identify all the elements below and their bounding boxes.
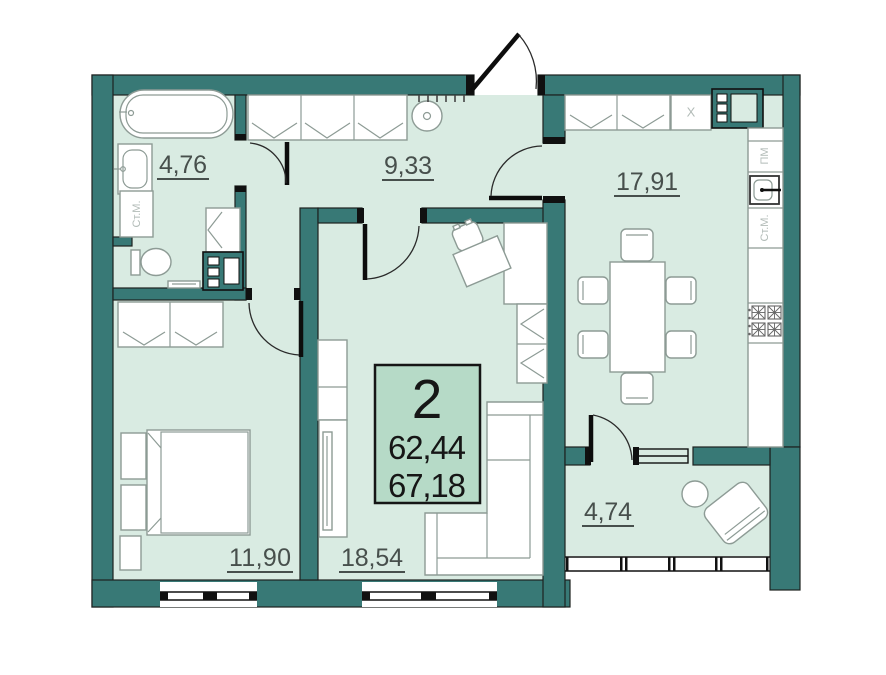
living-room-cabinet-icon bbox=[504, 223, 547, 304]
bedroom-wardrobe-icon bbox=[118, 302, 223, 347]
bathroom-cabinet-icon bbox=[206, 208, 240, 252]
balcony-table-icon bbox=[682, 481, 708, 507]
living-room-wardrobe-icon bbox=[517, 304, 547, 383]
kitchen-area-label: 17,91 bbox=[616, 168, 678, 196]
apartment-number: 2 bbox=[412, 368, 443, 430]
bed-icon bbox=[147, 430, 250, 535]
apartment-info-box: 2 62,44 67,18 bbox=[375, 365, 480, 504]
washing-machine-bath-label: Ст.М. bbox=[131, 200, 143, 227]
apartment-area-1: 62,44 bbox=[388, 429, 466, 466]
oven-icon bbox=[712, 89, 763, 128]
bathroom-shelf-unit-icon bbox=[203, 252, 243, 290]
bath-mat-icon bbox=[168, 281, 200, 288]
living-room-window bbox=[362, 582, 497, 607]
living-room-area-label: 18,54 bbox=[341, 544, 403, 572]
fridge-icon: X bbox=[671, 95, 711, 130]
balcony-area-label: 4,74 bbox=[584, 498, 632, 526]
hallway-mirror-icon bbox=[412, 101, 442, 131]
washbasin-icon bbox=[114, 144, 152, 194]
dining-table-icon bbox=[610, 262, 665, 372]
apartment-area-2: 67,18 bbox=[388, 467, 466, 504]
bedroom-area-label: 11,90 bbox=[229, 544, 291, 572]
fridge-label: X bbox=[687, 104, 696, 119]
bathtub-icon bbox=[119, 90, 233, 138]
entrance-door bbox=[471, 34, 536, 91]
bedroom-window bbox=[160, 582, 257, 607]
living-room-shelves-icon bbox=[318, 340, 347, 420]
hallway-closet-icon bbox=[248, 95, 407, 140]
bathroom-area-label: 4,76 bbox=[159, 151, 207, 179]
floor-plan-drawing: Ст.М. bbox=[0, 0, 886, 670]
dishwasher-label: ПМ bbox=[759, 147, 771, 164]
hallway-area-label: 9,33 bbox=[384, 152, 432, 180]
balcony-exterior-clear bbox=[565, 556, 770, 607]
floor-plan: Ст.М. bbox=[0, 0, 886, 670]
kitchen-cabinets-icon bbox=[565, 95, 670, 130]
washing-machine-kitchen-label: Ст.М. bbox=[759, 214, 771, 241]
toilet-icon bbox=[131, 249, 171, 276]
washing-machine-bath-icon: Ст.М. bbox=[120, 191, 153, 237]
kitchen-sink-icon bbox=[750, 176, 781, 204]
tv-stand-icon bbox=[319, 420, 347, 537]
